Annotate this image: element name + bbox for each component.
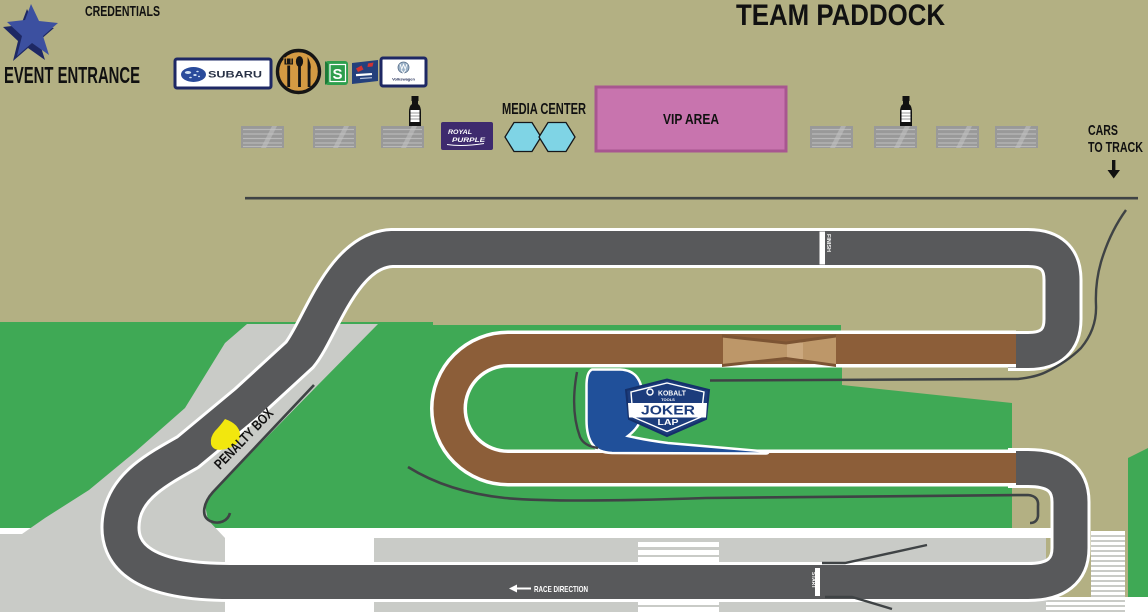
svg-text:LAP: LAP <box>658 418 680 427</box>
svg-text:SUBARU: SUBARU <box>208 70 262 81</box>
svg-text:TOOLS: TOOLS <box>661 397 675 402</box>
svg-text:TEAM PADDOCK: TEAM PADDOCK <box>736 0 945 32</box>
svg-text:START: START <box>810 572 816 588</box>
svg-text:Volkswagen: Volkswagen <box>392 77 415 82</box>
svg-text:JOKER: JOKER <box>641 404 695 418</box>
svg-text:VIP AREA: VIP AREA <box>663 111 719 128</box>
svg-text:TO TRACK: TO TRACK <box>1088 139 1143 156</box>
svg-text:ROYAL: ROYAL <box>448 129 472 136</box>
svg-text:S: S <box>332 66 342 83</box>
svg-text:MEDIA CENTER: MEDIA CENTER <box>502 101 586 118</box>
svg-text:PURPLE: PURPLE <box>452 137 486 144</box>
svg-text:CREDENTIALS: CREDENTIALS <box>85 3 160 20</box>
svg-text:CARS: CARS <box>1088 122 1118 139</box>
svg-text:FINISH: FINISH <box>825 234 831 252</box>
svg-text:RACE DIRECTION: RACE DIRECTION <box>534 584 588 594</box>
svg-text:EVENT ENTRANCE: EVENT ENTRANCE <box>4 62 140 88</box>
